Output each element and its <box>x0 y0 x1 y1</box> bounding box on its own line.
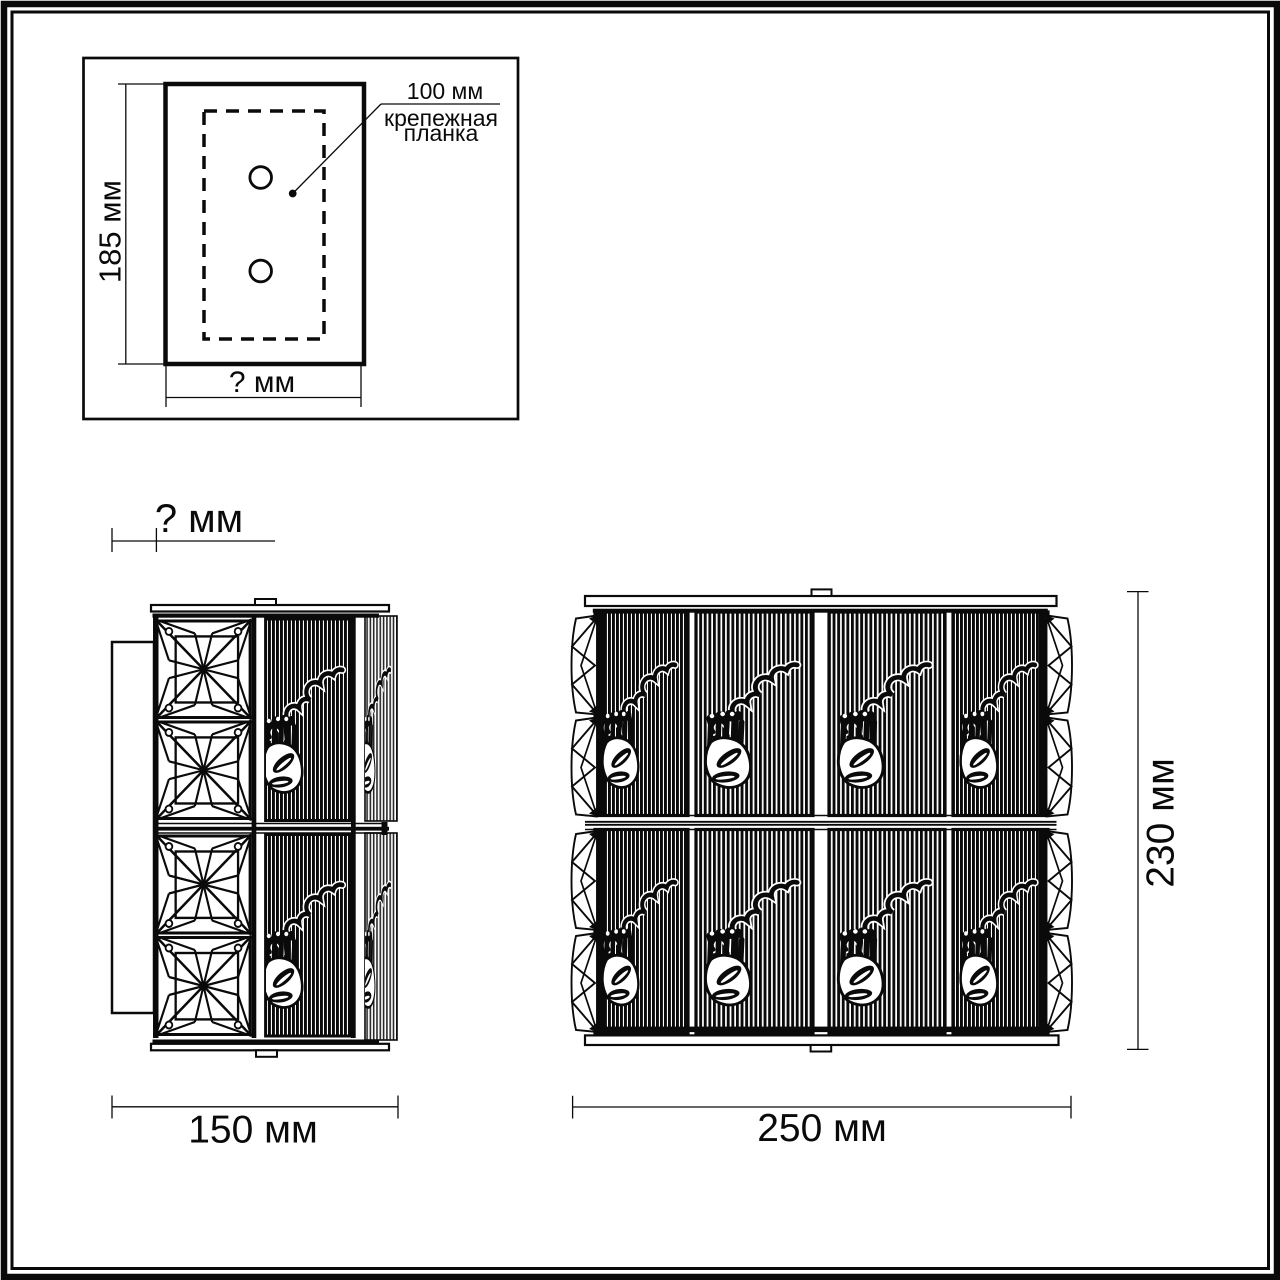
svg-text:? мм: ? мм <box>229 366 295 399</box>
svg-text:планка: планка <box>404 120 479 146</box>
svg-text:? мм: ? мм <box>155 497 243 541</box>
svg-text:185 мм: 185 мм <box>93 180 128 283</box>
svg-text:230 мм: 230 мм <box>1140 758 1183 888</box>
svg-text:150 мм: 150 мм <box>188 1109 318 1152</box>
svg-text:250 мм: 250 мм <box>757 1107 887 1150</box>
svg-text:100 мм: 100 мм <box>407 78 483 104</box>
